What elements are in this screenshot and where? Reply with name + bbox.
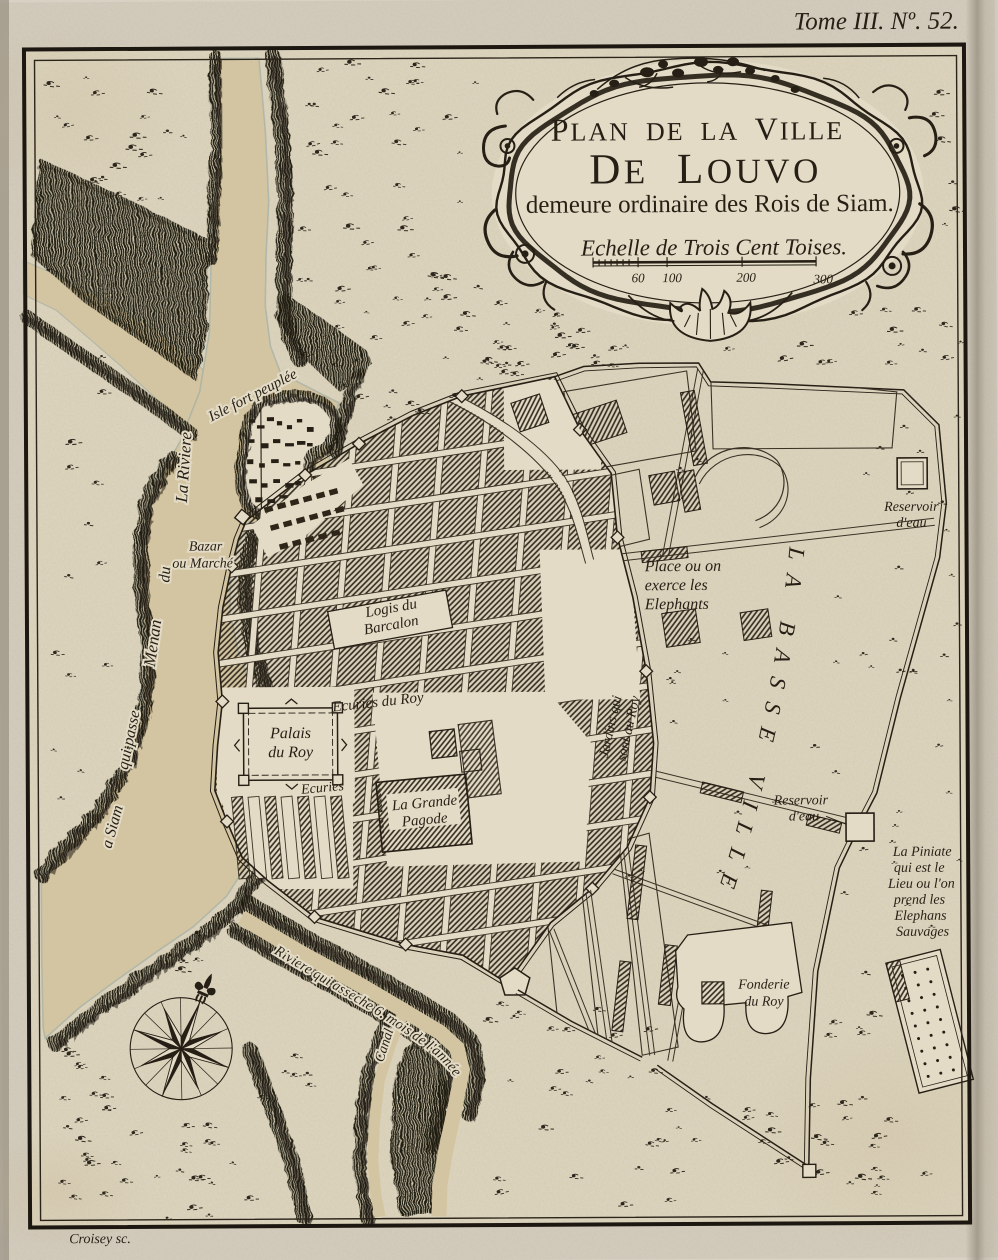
svg-text:Reservoir: Reservoir [883,500,939,515]
svg-text:Palais: Palais [269,725,311,742]
svg-text:prend les: prend les [893,893,946,908]
svg-text:Tome III. Nº. 52.: Tome III. Nº. 52. [794,8,959,36]
svg-text:Fonderie: Fonderie [737,977,789,992]
svg-text:Reservoir: Reservoir [773,793,829,808]
svg-text:du Roy: du Roy [268,744,314,761]
svg-text:Sauvages: Sauvages [896,925,950,940]
svg-text:Lieu ou l'on: Lieu ou l'on [887,877,955,892]
svg-text:du: du [156,566,174,583]
svg-text:qui est le: qui est le [894,861,945,876]
svg-text:300: 300 [812,271,833,286]
svg-text:Echelle de Trois Cent Toises.: Echelle de Trois Cent Toises. [580,234,847,260]
svg-text:Elephants: Elephants [644,596,709,613]
svg-text:La Piniate: La Piniate [892,845,952,860]
svg-text:DE LOUVO: DE LOUVO [589,145,822,193]
svg-text:60: 60 [632,270,646,285]
svg-text:ou Marché: ou Marché [172,556,233,571]
svg-text:demeure ordinaire des Rois de: demeure ordinaire des Rois de Siam. [526,190,894,219]
svg-text:d'eau: d'eau [896,516,926,531]
svg-text:100: 100 [662,270,682,285]
svg-text:Bazar: Bazar [189,539,223,554]
svg-text:Elephans: Elephans [893,909,947,924]
svg-text:Place ou on: Place ou on [644,558,722,575]
svg-text:du Roy: du Roy [744,995,784,1010]
svg-text:Croisey sc.: Croisey sc. [69,1232,131,1247]
svg-text:d'eau: d'eau [789,809,819,824]
svg-text:exerce les: exerce les [645,577,708,594]
svg-text:200: 200 [736,270,756,285]
